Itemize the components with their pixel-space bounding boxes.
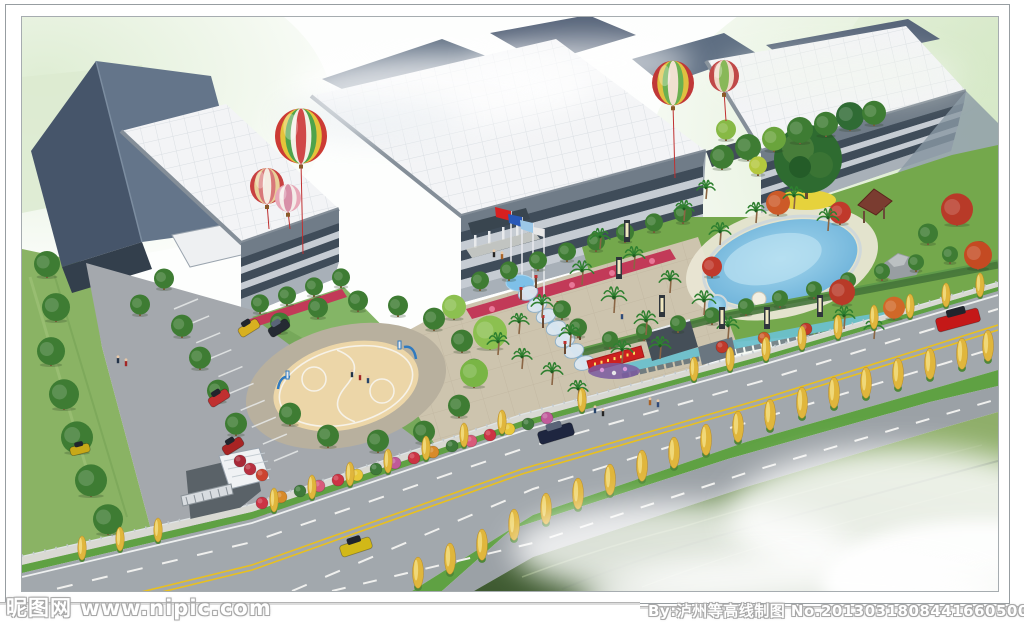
watermark-nipic: 昵图网 www.nipic.com [6,592,272,622]
watermark-author: By:泸州等高线制图 No.20130318084416605000 [648,600,1024,621]
architectural-rendering-page: 昵图网 www.nipic.com By:泸州等高线制图 No.20130318… [0,0,1024,622]
rendering-frame [21,16,999,592]
scene-rendering [22,17,998,591]
